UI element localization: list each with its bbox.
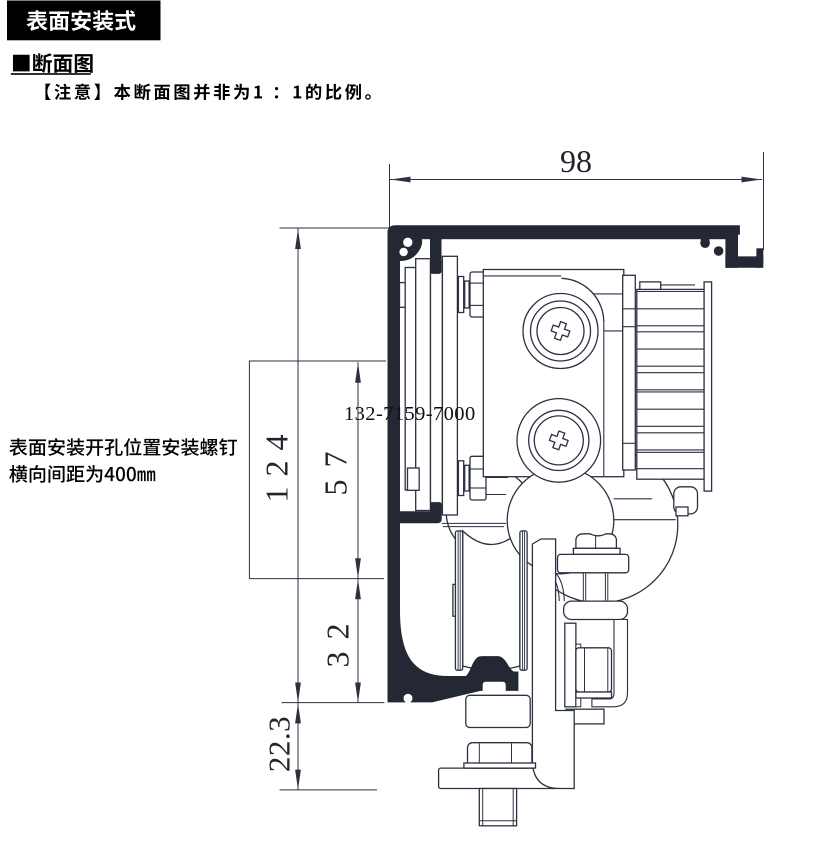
svg-text:57: 57 <box>318 440 354 496</box>
svg-text:98: 98 <box>560 143 592 179</box>
svg-text:32: 32 <box>320 612 356 668</box>
svg-text:124: 124 <box>259 425 295 503</box>
svg-text:22.3: 22.3 <box>262 716 297 772</box>
svg-text:132-7159-7000: 132-7159-7000 <box>344 403 476 425</box>
